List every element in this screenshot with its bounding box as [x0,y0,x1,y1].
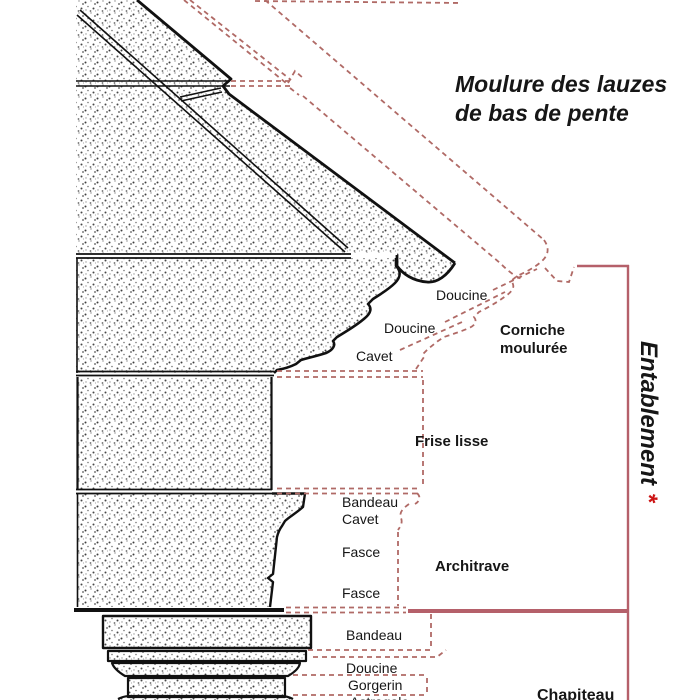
entablement-word: Entablement [635,341,662,486]
title-line2: de bas de pente [455,100,629,126]
frieze-top-joint [76,372,274,376]
architrave-dashed-scurve [398,504,409,530]
architrave-top-joint [76,490,272,494]
label-bandeau-architrave: Bandeau [342,494,398,510]
label-chapiteau: Chapiteau [537,687,614,700]
capital-row-doucine-top [313,650,446,657]
roof-wall-mass [76,0,455,282]
architrave-block [77,494,305,607]
moulure-dashed-top-line [255,1,462,3]
cornice-diagram: Moulure des lauzes de bas de pente Douci… [0,0,700,700]
title-line1: Moulure des lauzes [455,71,667,97]
frieze-frame-top [277,371,423,377]
label-corniche-line2: moulurée [500,340,568,357]
cornice-block [76,258,400,373]
cornice-top-joint [76,254,351,258]
label-gorgerin: Gorgerin [348,677,402,693]
label-doucine-capital: Doucine [346,660,398,676]
moulure-dashed-notch [288,71,303,95]
label-bandeau-capital: Bandeau [346,627,402,643]
moulure-dashed-horizontal-joint [231,81,290,86]
capital-doucine-block [112,663,300,676]
labels: Moulure des lauzes de bas de pente Douci… [342,71,667,700]
label-architrave: Architrave [435,558,509,575]
label-fasce-lower: Fasce [342,585,380,601]
capital-gorgerin-block [128,678,285,697]
diagram-canvas: Moulure des lauzes de bas de pente Douci… [0,0,700,700]
architrave-dashed-bottom [286,608,406,613]
moulure-dashed-end-notch [545,267,574,282]
label-astragale: Astragale [350,694,409,700]
capital-bandeau-block [103,616,311,648]
label-frise-lisse: Frise lisse [415,433,488,450]
label-doucine-upper: Doucine [436,287,488,303]
label-doucine-lower: Doucine [384,320,436,336]
cornice-corner-tick [416,357,424,369]
label-corniche-line1: Corniche [500,322,565,339]
leader-doucine-upper [493,269,537,290]
entablement-asterisk: * [635,493,662,504]
frieze-block [77,377,272,490]
capital-filet-block [108,651,306,661]
label-fasce-upper: Fasce [342,544,380,560]
label-entablement: Entablement* [635,341,662,504]
label-cavet-cornice: Cavet [356,348,393,364]
label-cavet-architrave: Cavet [342,511,379,527]
